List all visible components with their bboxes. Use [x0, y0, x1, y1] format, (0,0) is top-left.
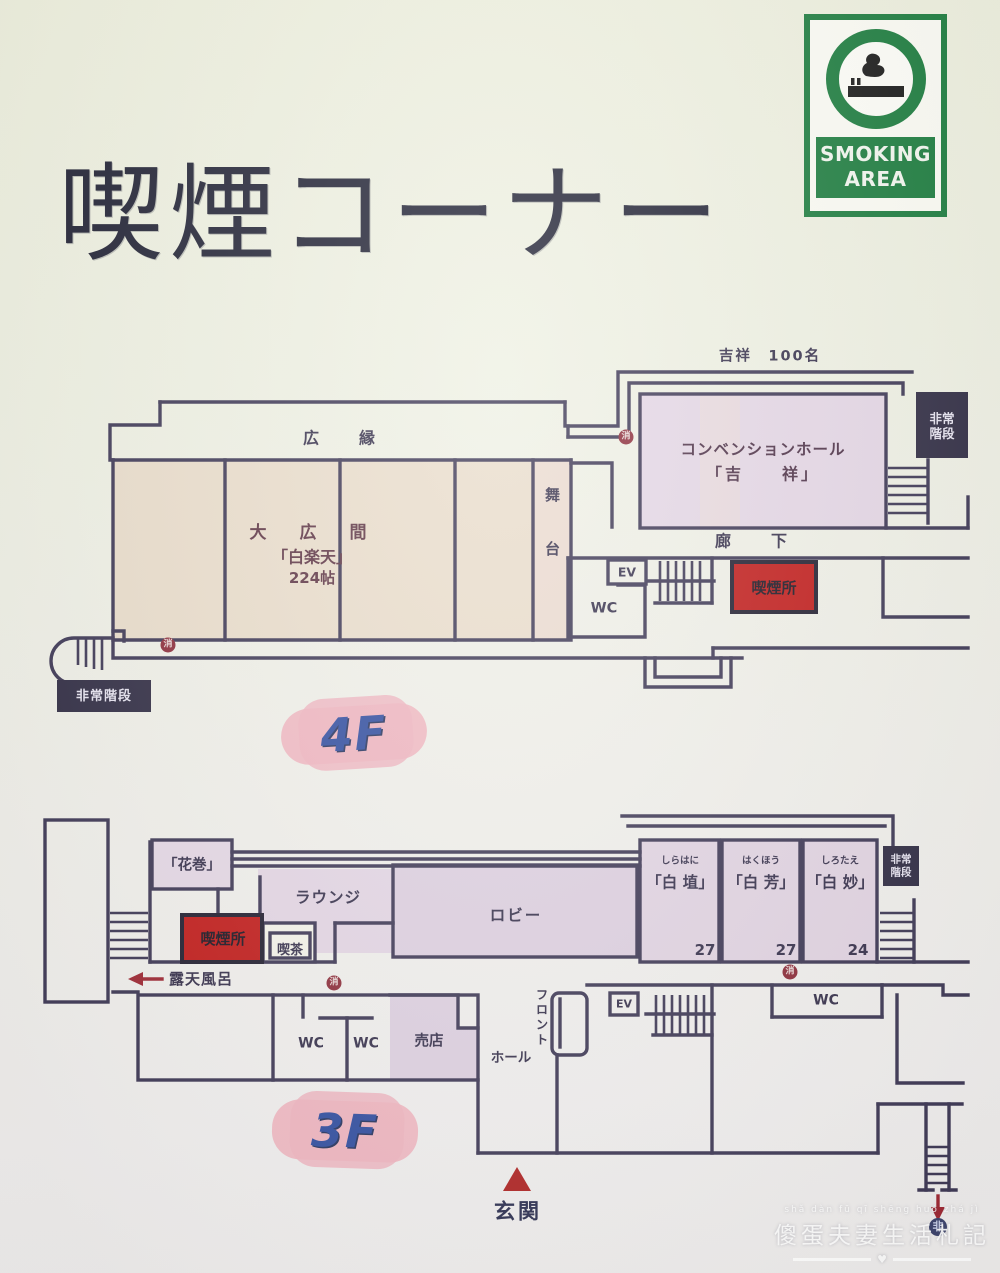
emergency-stairs-4f-left: 非常階段 [76, 689, 132, 705]
elevator-label-3f: EV [616, 997, 632, 1010]
floor3-badge-text: 3F [310, 1103, 379, 1159]
cigarette-icon [844, 50, 908, 108]
open-air-bath-label: 露天風呂 [169, 970, 233, 988]
stage-label: 舞台 [543, 487, 561, 595]
fire-marker-4f-left: 消 [161, 638, 176, 653]
area-word: AREA [816, 167, 935, 192]
fire-marker-4f-hall: 消 [619, 430, 634, 445]
emergency-stairs-3f: 非常階段 [888, 853, 914, 878]
floor4-badge-text: 4F [319, 705, 390, 763]
grand-hall-size: 224帖 [289, 569, 335, 587]
smoking-area-sign: SMOKING AREA [804, 14, 947, 217]
page-title: 喫煙コーナー [58, 158, 724, 275]
hanamaki-room-label: 「花巻」 [163, 857, 221, 874]
room3-name: 「白 妙」 [806, 874, 873, 893]
wc-label-3f-a: WC [298, 1036, 324, 1053]
hall-capacity-label: 吉祥 100名 [719, 348, 821, 365]
smoking-room-4f: 喫煙所 [751, 579, 796, 597]
heart-icon: ♥ [877, 1254, 887, 1265]
watermark-divider: ♥ [768, 1254, 996, 1265]
elevator-label-4f: EV [618, 565, 636, 580]
front-desk-label: フロント [534, 988, 549, 1048]
lobby-label: ロビー [490, 907, 543, 926]
smoking-word: SMOKING [816, 142, 935, 167]
watermark-line-right [893, 1258, 971, 1261]
convention-hall-title: コンベンションホール [680, 441, 845, 460]
room2-number: 27 [776, 941, 797, 959]
watermark-text: 傻蛋夫妻生活札記 [768, 1216, 996, 1250]
fire-marker-3f-left: 消 [327, 976, 342, 991]
room3-furigana: しろたえ [821, 855, 859, 866]
smoking-room-3f: 喫煙所 [200, 930, 245, 948]
smoking-corner-sign: 喫煙コーナー SMOKING AREA [0, 0, 1000, 1273]
grand-hall-title: 大 広 間 [250, 523, 375, 543]
wc-label-3f-b: WC [353, 1036, 379, 1053]
room2-name: 「白 芳」 [727, 874, 794, 893]
watermark: shǎ dàn fū qī shēng huó zhá jì 傻蛋夫妻生活札記 … [768, 1205, 996, 1265]
floor4-badge: 4F [279, 702, 428, 767]
room1-number: 27 [695, 941, 716, 959]
smoking-circle [826, 29, 926, 129]
emergency-stairs-4f-right: 非常階段 [926, 411, 958, 441]
entrance-label: 玄関 [494, 1199, 542, 1224]
grand-hall-name: 「白楽天」 [272, 547, 352, 566]
floor4-plan [0, 335, 1000, 795]
fire-marker-3f-right: 消 [783, 965, 798, 980]
shop-label: 売店 [415, 1033, 444, 1050]
wc-label-3f-c: WC [813, 993, 839, 1010]
veranda-label: 広 縁 [303, 428, 387, 447]
room3-number: 24 [848, 941, 869, 959]
room1-name: 「白 埴」 [646, 874, 713, 893]
hall-label: ホール [491, 1050, 532, 1066]
room1-furigana: しらはに [661, 855, 699, 866]
corridor-label: 廊 下 [715, 531, 799, 550]
wc-label-4f: WC [591, 600, 618, 617]
floor3-badge: 3F [271, 1098, 419, 1163]
cafe-label: 喫茶 [277, 943, 303, 959]
watermark-pinyin: shǎ dàn fū qī shēng huó zhá jì [768, 1205, 996, 1215]
watermark-line-left [793, 1258, 871, 1261]
room2-furigana: はくほう [742, 855, 780, 866]
convention-hall-name: 「吉 祥」 [706, 464, 820, 483]
lounge-label: ラウンジ [295, 889, 361, 908]
smoking-area-text: SMOKING AREA [816, 137, 935, 198]
